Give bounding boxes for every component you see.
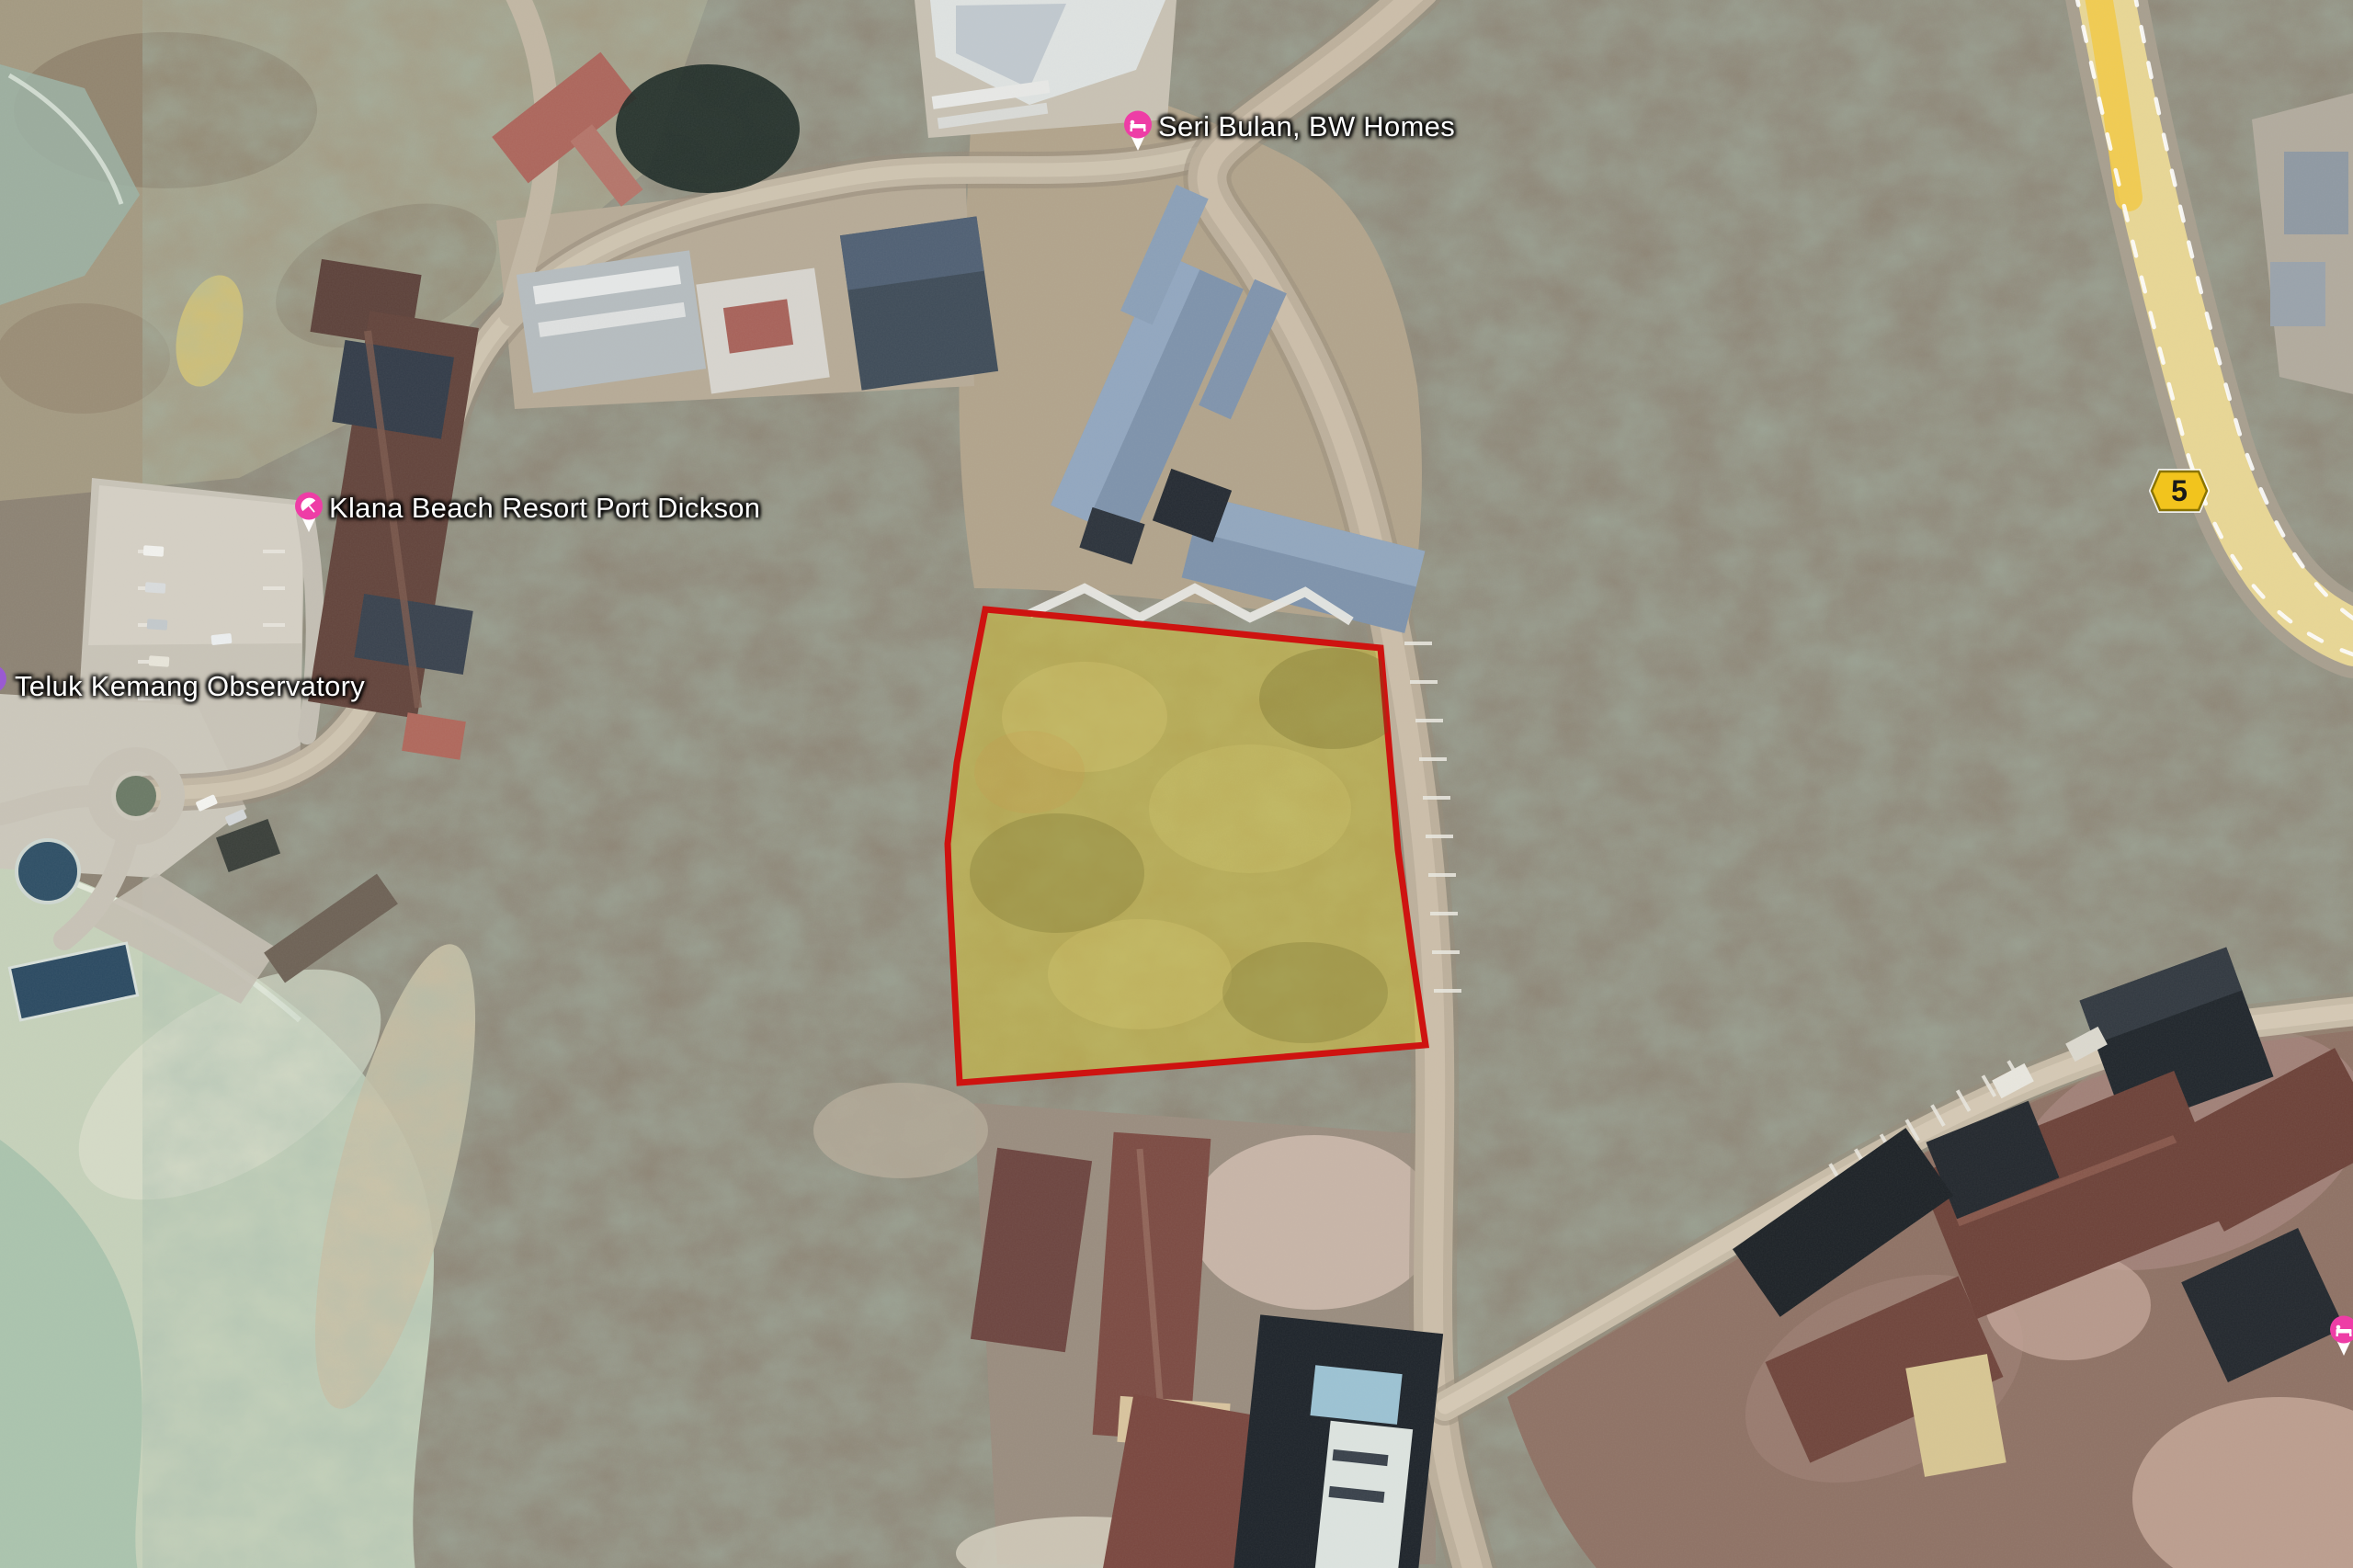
attraction-pin-icon[interactable] [0,664,9,706]
poi-label-text: Teluk Kemang Observatory [15,669,365,703]
route-number: 5 [2171,474,2188,507]
poi-label-text: Seri Bulan, BW Homes [1158,109,1455,143]
map-label-klana-beach-resort[interactable]: Klana Beach Resort Port Dickson [292,491,760,533]
map-label-teluk-kemang-observatory[interactable]: Teluk Kemang Observatory [15,669,365,703]
satellite-map[interactable]: Seri Bulan, BW Homes Klana Beach Resort … [0,0,2353,1568]
poi-label-text: Klana Beach Resort Port Dickson [329,491,760,525]
lodging-pin-icon-right-edge[interactable] [2327,1314,2353,1357]
parcel-group [948,609,1426,1083]
map-label-seri-bulan[interactable]: Seri Bulan, BW Homes [1121,109,1455,152]
satellite-imagery [0,0,2353,1568]
lodging-pin-icon[interactable] [1121,109,1154,152]
route-5-shield: 5 [2149,469,2210,517]
beach-resort-pin-icon[interactable] [292,491,325,533]
